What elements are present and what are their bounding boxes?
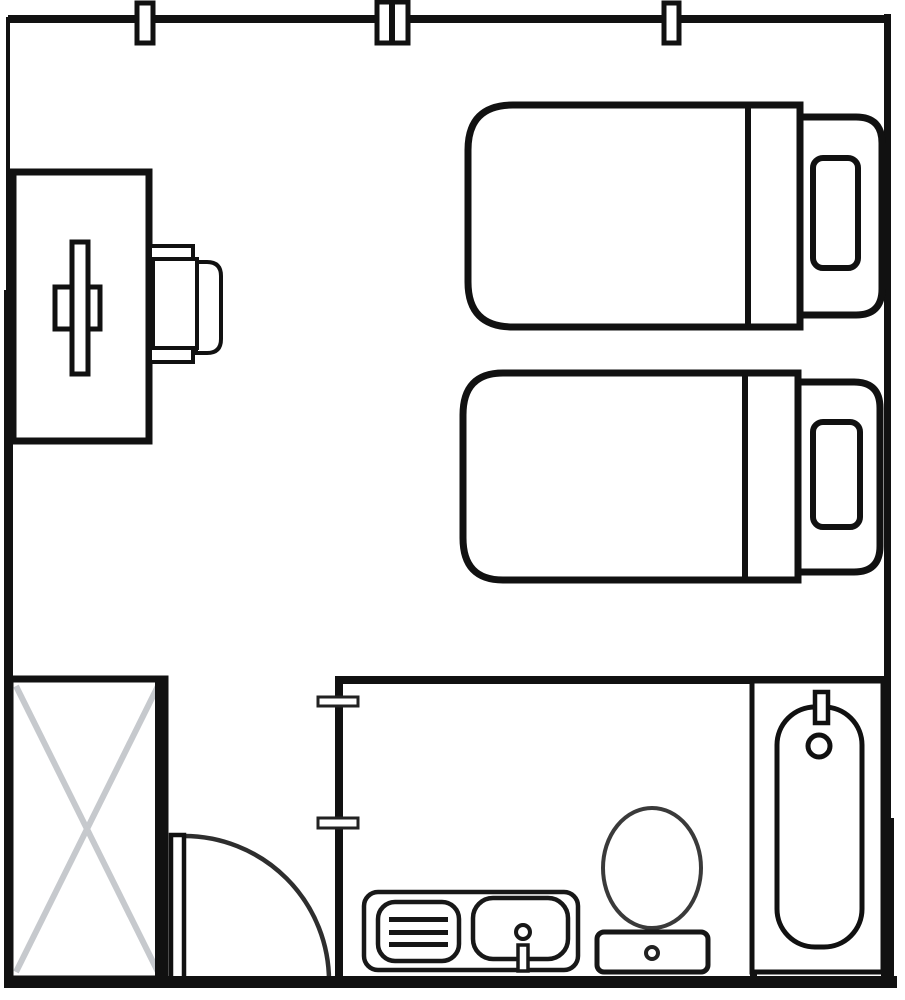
window-marker-middle-mullion [389, 2, 395, 43]
chair-seat [153, 259, 197, 348]
wardrobe-right-edge [155, 678, 166, 980]
door-swing-arc [184, 836, 329, 981]
bathtub-drain [808, 735, 830, 757]
chair-backrest [196, 262, 221, 353]
wall-opening-tick-top [318, 697, 358, 706]
toilet-flush-button [646, 947, 658, 959]
vanity-faucet-circle [516, 925, 530, 939]
door-leaf [171, 835, 184, 980]
window-marker-right [664, 3, 679, 43]
window-marker-left [137, 3, 153, 43]
floor-plan-canvas [0, 0, 905, 1000]
bed-2-pillow [813, 422, 860, 527]
floor-plan [0, 0, 905, 1000]
vanity-grate-bar-2 [389, 930, 448, 935]
vanity-grate-bar-3 [389, 942, 448, 947]
bathroom-left-wall [335, 676, 343, 988]
toilet-bowl [603, 808, 701, 928]
desk-cross-vertical [72, 242, 88, 374]
left-wall-upper [6, 17, 10, 293]
vanity-grate-bar-1 [389, 917, 448, 922]
bed-1-pillow [813, 158, 858, 268]
bottom-wall [4, 976, 897, 988]
bathtub-tap [815, 692, 828, 723]
vanity-faucet-handle [518, 945, 528, 971]
wall-opening-tick-bottom [318, 818, 358, 828]
